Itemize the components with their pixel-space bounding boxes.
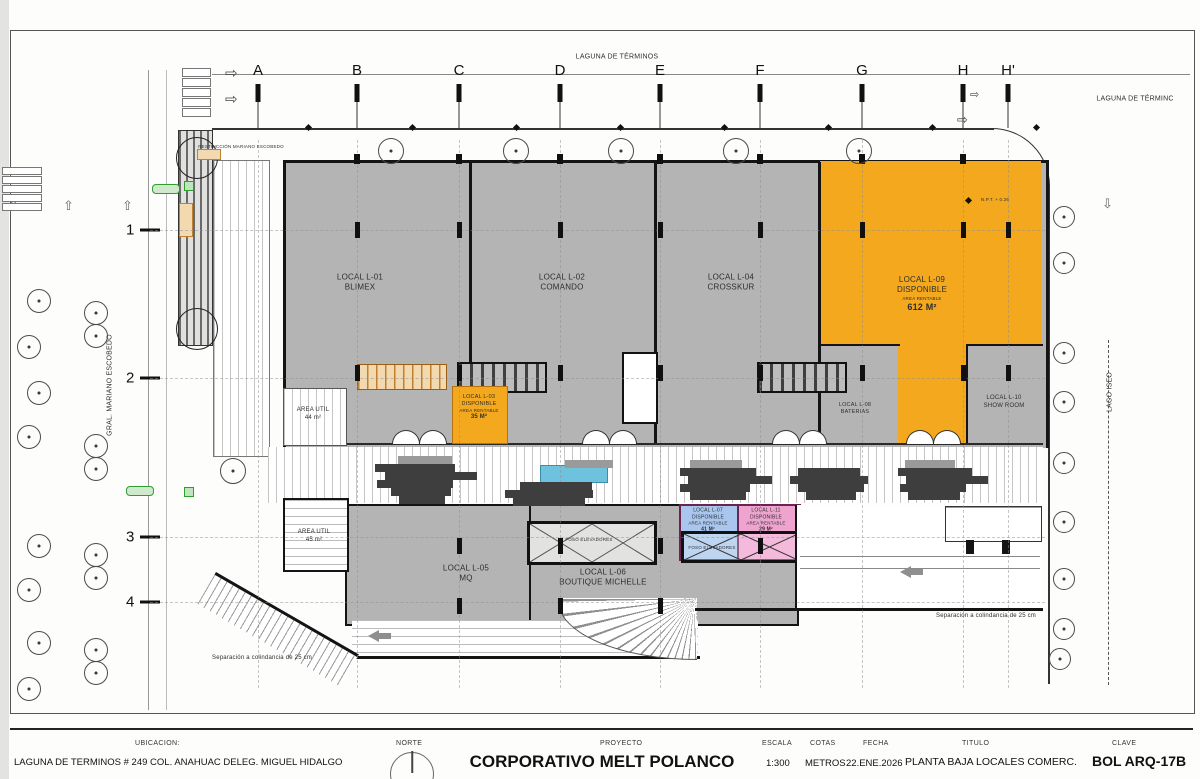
grid-column-line [660,102,661,128]
left-curb-line [148,70,149,710]
crosswalk-bar [2,167,42,175]
partition-wall [818,162,821,444]
grid-column-line [862,102,863,128]
tree-icon [1053,252,1075,274]
clave-value: BOL ARQ-17B [1092,753,1186,769]
dock-bumper [966,540,974,554]
column-marker [658,538,663,554]
column-marker [961,365,966,381]
tree-icon [1053,452,1075,474]
tree-icon [608,138,634,164]
local-id: LOCAL L-10 [984,395,1025,403]
column-marker [860,365,865,381]
local-l05-label: LOCAL L-05 MQ [443,564,489,585]
local-id: AREA UTIL [297,407,329,415]
column-marker [758,538,763,554]
tree-icon [84,324,108,348]
tree-icon [27,631,51,655]
esplanade-edge-wall [350,656,700,659]
gate-symbol [184,181,194,191]
column-marker [558,222,563,238]
partition-wall [795,505,797,611]
column-marker [1006,365,1011,381]
gate-symbol [184,487,194,497]
grid-column-tick [860,84,865,102]
local-name: DISPONIBLE [459,401,498,408]
scan-edge [0,0,9,779]
grid-row-axis [150,602,1045,603]
grid-column-tick [558,84,563,102]
grid-column-label: F [755,62,764,79]
column-marker [355,365,360,381]
titulo-label: TITULO [962,740,989,747]
partition-wall [820,344,900,346]
local-id: LOCAL L-09 [897,275,947,285]
local-l11-label: LOCAL L-11 DISPONIBLE AREA RENTABLE 29 M… [746,507,785,532]
paver-band [391,488,451,496]
column-marker [457,365,462,381]
tree-icon [27,289,51,313]
tree-icon [17,335,41,359]
tree-icon [1053,342,1075,364]
crosswalk-bar [182,98,211,107]
paver-band [798,484,864,492]
traffic-arrow-right-icon: ⇨ [970,88,979,101]
local-area: 41 M² [688,526,727,533]
ramp-tree-circle [176,308,218,350]
project-title: CORPORATIVO MELT POLANCO [462,752,742,772]
tree-icon [846,138,872,164]
column-marker [457,598,462,614]
area-util-a-label: AREA UTIL 44 m² [297,407,329,423]
paver-band [680,484,750,492]
paver-band [798,468,860,476]
area-rentable-label: AREA RENTABLE [897,296,947,302]
tree-icon [1053,511,1075,533]
local-l10-label: LOCAL L-10 SHOW ROOM [984,395,1025,411]
kiosk-box [197,149,221,160]
tree-icon [84,566,108,590]
restriction-note: RESTRICCIÓN MARIANO ESCOBEDO [198,144,284,150]
titulo-value: PLANTA BAJA LOCALES COMERC. [905,756,1077,768]
paver-band [900,484,966,492]
street-name-top: LAGUNA DE TÉRMINOS [576,52,658,61]
escala-label: ESCALA [762,740,792,747]
local-name: BLIMEX [337,283,383,293]
grid-column-label: G [856,62,868,79]
partition-wall [966,344,1043,346]
street-top-curb-line [212,128,994,130]
tree-icon [27,381,51,405]
proyecto-label: PROYECTO [600,740,642,747]
crosswalk-bar [2,185,42,193]
grid-column-label: H [958,62,969,79]
area-rentable-label: AREA RENTABLE [688,520,727,526]
side-walkway [213,160,270,457]
tree-icon [84,638,108,662]
car-symbol [126,486,154,496]
local-id: LOCAL L-04 [708,273,755,283]
local-id: AREA UTIL [298,529,330,537]
grid-row-label: 1 [126,222,134,239]
wall-pier [960,154,966,164]
column-marker [658,598,663,614]
street-right-dashed-centerline [1108,340,1109,685]
paver-band [688,476,772,484]
tree-icon [84,434,108,458]
traffic-arrow-down-icon: ⇩ [1102,196,1113,212]
local-id: LOCAL L-05 [443,564,489,574]
local-id: LOCAL L-08 [839,402,871,409]
paver-band [898,468,972,476]
traffic-arrow-right-icon: ⇨ [225,64,238,82]
elevator-shaft [622,352,658,424]
tree-icon [84,301,108,325]
paver-band [690,492,746,500]
tree-icon [17,578,41,602]
flow-arrow-left-icon [900,566,911,578]
grid-column-tick [256,84,261,102]
local-area: 612 M² [897,301,947,313]
grid-row-label: 2 [126,370,134,387]
tree-icon [220,458,246,484]
paver-band [906,476,988,484]
column-marker [558,538,563,554]
separation-note-left: Separación a colindancia de 25 cm [212,655,312,663]
escala-value: 1:300 [766,758,790,769]
grid-row-label: 4 [126,594,134,611]
separation-note-right: Separación a colindancia de 25 cm [936,613,1036,621]
partition-wall [966,345,968,444]
local-area: 44 m² [297,415,329,423]
tree-icon [378,138,404,164]
local-l03-label: LOCAL L-03 DISPONIBLE AREA RENTABLE 35 M… [459,394,498,422]
clave-label: CLAVE [1112,740,1136,747]
grid-column-line [258,102,259,128]
wall-pier [557,154,563,164]
elevator-pit-core [527,521,657,565]
local-area: 45 m² [298,537,330,545]
local-name: COMANDO [539,283,585,293]
local-l09-area-extension [898,345,968,444]
street-name-right: LAGO ISEO [1105,372,1114,412]
grid-column-line [357,102,358,128]
column-marker [961,222,966,238]
paver-band [398,456,452,464]
local-id: LOCAL L-03 [459,394,498,401]
crosswalk-bar [182,108,211,117]
fecha-value: 22.ENE.2026 [846,758,903,769]
local-name: BOUTIQUE MICHELLE [559,578,646,588]
grid-column-line [1008,102,1009,128]
paver-band [690,460,742,468]
guard-post-box [179,203,193,237]
cotas-label: COTAS [810,740,836,747]
paver-band [399,496,445,504]
grid-column-label: A [253,62,263,79]
paver-band [908,492,960,500]
grid-column-axis [258,140,259,688]
crosswalk-bar [182,68,211,77]
ubicacion-value: LAGUNA DE TERMINOS # 249 COL. ANAHUAC DE… [14,757,342,768]
local-area: 35 M² [459,414,498,422]
grid-column-label: B [352,62,362,79]
street-name-left: GRAL. MARIANO ESCOBEDO [105,334,114,436]
column-marker [1006,222,1011,238]
local-id: LOCAL L-01 [337,273,383,283]
grid-row-axis [150,537,1045,538]
tree-icon [1053,618,1075,640]
paver-band [513,498,585,506]
grid-row-axis [150,230,1045,231]
local-l09-label: LOCAL L-09 DISPONIBLE AREA RENTABLE 612 … [897,275,947,313]
npt-level-note: N.P.T. + 0.26 [981,197,1009,203]
wall-pier [757,154,763,164]
column-marker [758,222,763,238]
tree-icon [84,457,108,481]
grid-column-line [560,102,561,128]
left-curb-line [166,70,167,710]
grid-row-axis [150,378,1045,379]
norte-label: NORTE [396,740,422,747]
local-id: LOCAL L-07 [688,507,727,514]
paver-band [375,464,455,472]
building-bottom-wall [695,608,1043,611]
local-name: BATERIAS [839,409,871,416]
crosswalk-bar [2,203,42,211]
paver-band [385,472,477,480]
fecha-label: FECHA [863,740,889,747]
ubicacion-label: UBICACION: [135,740,180,747]
wall-pier [456,154,462,164]
foso-label: FOSO ELEVADORES [688,545,735,551]
tree-icon [1053,568,1075,590]
tree-icon [84,661,108,685]
grid-column-label: E [655,62,665,79]
paver-band [520,482,592,490]
local-l01-label: LOCAL L-01 BLIMEX [337,273,383,294]
tree-icon [1049,648,1071,670]
traffic-arrow-up-icon: ⇧ [63,198,74,214]
wall-pier [354,154,360,164]
column-marker [457,222,462,238]
grid-column-tick [355,84,360,102]
tree-icon [84,543,108,567]
stair-core [357,364,447,390]
grid-column-label: D [555,62,566,79]
titleblock-divider [10,728,1193,730]
grid-column-tick [758,84,763,102]
traffic-arrow-up-icon: ⇧ [122,198,133,214]
column-marker [860,222,865,238]
crosswalk-bar [2,176,42,184]
local-l07-label: LOCAL L-07 DISPONIBLE AREA RENTABLE 41 M… [688,507,727,532]
column-marker [658,365,663,381]
drawing-sheet: LAGUNA DE TÉRMINOS LAGUNA DE TÉRMINC GRA… [0,0,1200,779]
tree-icon [723,138,749,164]
ramp-curb-line [800,556,1040,557]
column-marker [658,222,663,238]
tree-icon [1053,391,1075,413]
grid-column-tick [961,84,966,102]
car-symbol [152,184,180,194]
column-marker [558,598,563,614]
local-l04-label: LOCAL L-04 CROSSKUR [708,273,755,294]
crosswalk-bar [182,88,211,97]
grid-column-tick [457,84,462,102]
local-l08-label: LOCAL L-08 BATERIAS [839,402,871,416]
tree-icon [1053,206,1075,228]
grid-column-line [760,102,761,128]
paver-band [905,460,955,468]
tree-icon [27,534,51,558]
wall-pier [657,154,663,164]
grid-column-label: H' [1001,62,1015,79]
crosswalk-bar [2,194,42,202]
tree-icon [17,677,41,701]
flow-arrow-left-icon [368,630,379,642]
street-name-top-right: LAGUNA DE TÉRMINC [1096,94,1173,103]
paver-band [806,492,856,500]
grid-column-label: C [454,62,465,79]
grid-column-line [963,102,964,128]
paver-band [565,460,613,468]
local-id: LOCAL L-06 [559,568,646,578]
tree-icon [503,138,529,164]
column-marker [758,365,763,381]
paver-band [680,468,756,476]
paver-band [377,480,453,488]
paver-band [505,490,593,498]
north-compass-icon [390,752,434,779]
local-name: MQ [443,574,489,584]
local-name: DISPONIBLE [897,285,947,295]
local-id: LOCAL L-11 [746,507,785,514]
column-marker [355,222,360,238]
tree-icon [17,425,41,449]
area-rentable-label: AREA RENTABLE [746,520,785,526]
grid-column-line [459,102,460,128]
column-marker [558,365,563,381]
cotas-value: METROS [805,758,846,769]
column-marker [457,538,462,554]
paver-band [790,476,868,484]
grid-row-label: 3 [126,529,134,546]
crosswalk-bar [182,78,211,87]
local-id: LOCAL L-02 [539,273,585,283]
grid-column-tick [658,84,663,102]
grid-column-tick [1006,84,1011,102]
local-l06-label: LOCAL L-06 BOUTIQUE MICHELLE [559,568,646,589]
local-name: SHOW ROOM [984,403,1025,411]
traffic-arrow-right-icon: ⇨ [225,90,238,108]
local-l02-label: LOCAL L-02 COMANDO [539,273,585,294]
local-area: 29 M² [746,526,785,533]
local-name: CROSSKUR [708,283,755,293]
